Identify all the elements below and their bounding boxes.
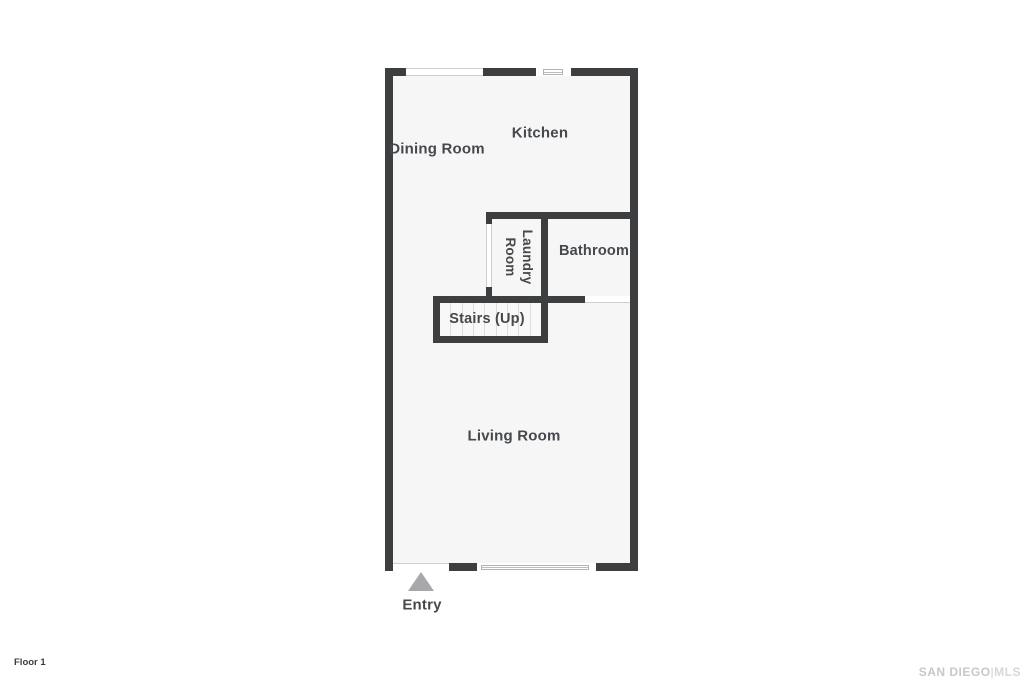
bathroom-door-opening — [585, 296, 630, 303]
wall-laundry-bathroom-top — [486, 212, 632, 219]
laundry-door-opening — [486, 224, 492, 287]
window-top-middle — [536, 68, 571, 76]
wall-stairs-bottom — [433, 336, 548, 343]
wall-laundry-left-stub-top — [486, 212, 492, 224]
wall-stairs-left — [433, 296, 440, 343]
window-frame — [543, 69, 563, 75]
room-label-living-room: Living Room — [467, 428, 560, 445]
floor-number-label: Floor 1 — [14, 657, 46, 668]
room-label-bathroom: Bathroom — [559, 243, 629, 259]
room-label-kitchen: Kitchen — [512, 125, 568, 142]
wall-bathroom-bottom — [548, 296, 585, 303]
room-label-stairs-up: Stairs (Up) — [449, 311, 525, 327]
wall-laundry-left-stub-bottom — [486, 287, 492, 296]
room-label-dining-room: Dining Room — [389, 141, 485, 158]
window-bottom — [477, 563, 596, 571]
window-frame — [481, 565, 589, 570]
watermark-text-right: MLS — [994, 665, 1021, 679]
watermark-text-left: SAN DIEGO — [919, 665, 991, 679]
floorplan-canvas: Kitchen Dining Room Laundry Room Bathroo… — [0, 0, 1024, 683]
wall-stairs-top — [433, 296, 548, 303]
entry-arrow-icon — [408, 572, 434, 591]
mls-watermark: SAN DIEGO|MLS — [919, 665, 1021, 679]
room-label-laundry-room: Laundry Room — [501, 224, 535, 290]
entry-door-opening — [393, 563, 449, 571]
entry-label: Entry — [402, 597, 441, 614]
window-top-left — [406, 68, 483, 76]
wall-laundry-bathroom-divider — [541, 212, 548, 343]
